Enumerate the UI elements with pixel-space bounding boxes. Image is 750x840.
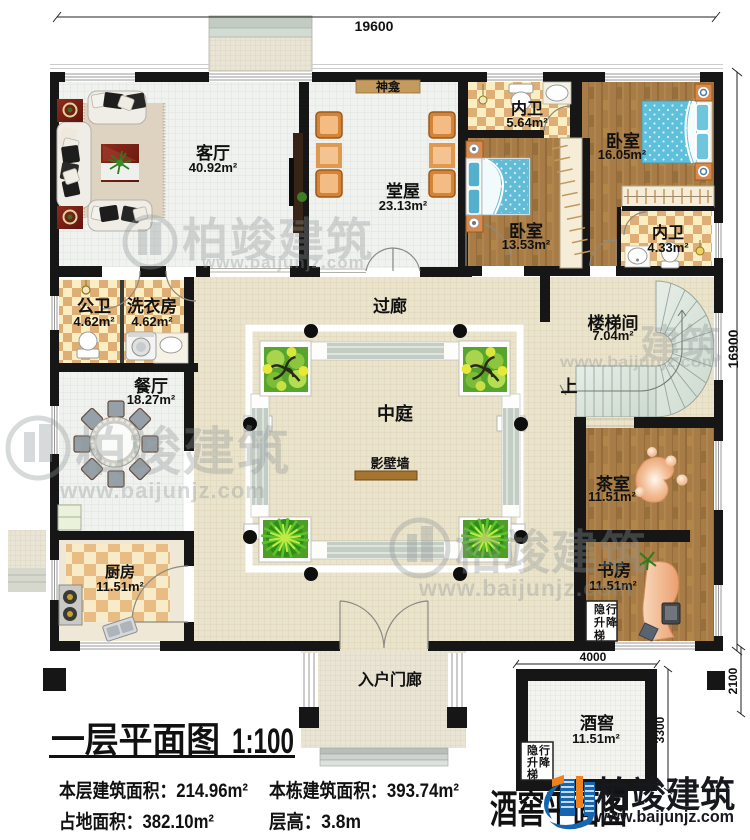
svg-text:16.05m²: 16.05m² (598, 147, 647, 162)
svg-text:酒窖: 酒窖 (580, 713, 614, 733)
svg-text:5.64m²: 5.64m² (506, 115, 548, 130)
svg-text:www.baijunjz.com: www.baijunjz.com (59, 478, 266, 503)
svg-text:4.62m²: 4.62m² (131, 314, 173, 329)
svg-text:降: 降 (606, 615, 618, 629)
svg-text:www.baijunjz.com: www.baijunjz.com (418, 575, 634, 601)
svg-text:柏竣建筑: 柏竣建筑 (75, 424, 291, 482)
svg-text:11.51m²: 11.51m² (96, 579, 144, 594)
svg-text:梯: 梯 (527, 767, 538, 781)
svg-text:7.04m²: 7.04m² (592, 328, 634, 343)
svg-text:降: 降 (539, 755, 551, 769)
svg-text:中庭: 中庭 (377, 403, 413, 424)
svg-text:40.92m²: 40.92m² (189, 160, 238, 175)
svg-text:13.53m²: 13.53m² (502, 237, 551, 252)
svg-text:柏竣建筑: 柏竣建筑 (455, 526, 647, 579)
svg-text:隐: 隐 (527, 743, 538, 757)
svg-text:本层建筑面积：214.96m²: 本层建筑面积：214.96m² (59, 779, 248, 802)
svg-text:上: 上 (561, 377, 578, 396)
svg-text:层高：3.8m: 层高：3.8m (269, 810, 361, 833)
svg-text:入户门廊: 入户门廊 (358, 670, 422, 689)
svg-text:www.baijunjz.com: www.baijunjz.com (594, 807, 734, 826)
svg-text:影壁墙: 影壁墙 (370, 456, 409, 471)
svg-text:洗衣房: 洗衣房 (127, 296, 177, 316)
svg-text:11.51m²: 11.51m² (572, 731, 620, 746)
svg-text:16900: 16900 (725, 329, 741, 368)
svg-text:占地面积：382.10m²: 占地面积：382.10m² (59, 810, 214, 833)
svg-text:神龛: 神龛 (376, 79, 401, 94)
svg-text:www.baijunjz.com: www.baijunjz.com (201, 253, 365, 272)
svg-text:过廊: 过廊 (373, 296, 407, 316)
svg-text:4000: 4000 (580, 650, 607, 664)
svg-text:梯: 梯 (594, 628, 605, 642)
svg-text:11.51m²: 11.51m² (588, 489, 636, 504)
svg-text:19600: 19600 (355, 18, 394, 34)
svg-text:本栋建筑面积：393.74m²: 本栋建筑面积：393.74m² (269, 779, 459, 802)
svg-text:行: 行 (605, 602, 617, 616)
svg-text:一层平面图: 一层平面图 (51, 721, 220, 760)
svg-text:行: 行 (538, 743, 550, 757)
svg-text:18.27m²: 18.27m² (127, 392, 176, 407)
svg-text:4.62m²: 4.62m² (73, 314, 115, 329)
svg-text:升: 升 (594, 615, 605, 629)
svg-text:2100: 2100 (726, 667, 740, 694)
svg-text:隐: 隐 (594, 602, 605, 616)
svg-text:升: 升 (527, 755, 538, 769)
svg-text:23.13m²: 23.13m² (379, 198, 428, 213)
svg-text:3300: 3300 (653, 716, 667, 743)
svg-text:4.33m²: 4.33m² (647, 240, 689, 255)
svg-text:www.baijunjz.com: www.baijunjz.com (559, 354, 718, 371)
